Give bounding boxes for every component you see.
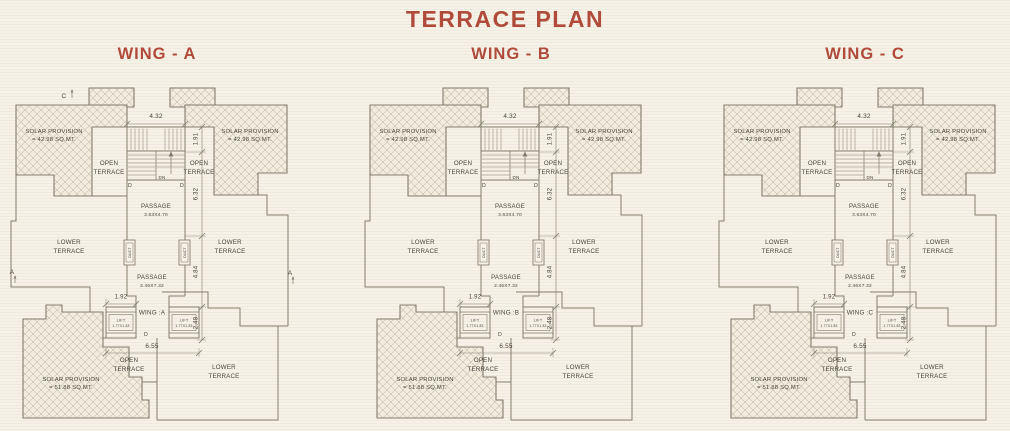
label-solar-provision-left: SOLAR PROVISION: [25, 129, 82, 135]
lift-label: LIFT: [117, 318, 126, 323]
wing-b-plan-svg: DNLIFT1.77X1.83LIFT1.77X1.83DUCTDUCT4.32…: [363, 86, 659, 431]
stair-dn-label: DN: [158, 175, 165, 180]
label-passage-lower-size: 2.46X7.32: [140, 283, 164, 289]
label-passage-lower-size: 2.46X7.32: [848, 283, 872, 289]
label-open-terrace-bottom: TERRACE: [114, 366, 145, 373]
label-lower-terrace-bottom-right: TERRACE: [563, 373, 594, 380]
dim-4-32: 4.32: [857, 113, 870, 120]
wall-line: [258, 195, 288, 326]
label-lower-terrace-bottom-right: TERRACE: [209, 373, 240, 380]
duct-label: DUCT: [128, 247, 132, 258]
label-lower-terrace-right: LOWER: [218, 239, 242, 246]
section-marker-a-right: A: [288, 270, 293, 277]
label-solar-provision-right: = 42.98 SQ.MT.: [582, 137, 626, 143]
section-marker-a-left: A: [10, 269, 15, 276]
door-label: D: [852, 332, 856, 338]
door-label: D: [128, 183, 132, 189]
stair-direction-arrow: [523, 151, 528, 156]
dim-6-55: 6.55: [499, 343, 512, 350]
lift-label: LIFT: [825, 318, 834, 323]
label-solar-provision-right: = 42.98 SQ.MT.: [228, 137, 272, 143]
label-solar-provision-right: = 42.98 SQ.MT.: [936, 137, 980, 143]
label-lower-terrace-bottom-right: TERRACE: [917, 373, 948, 380]
terrace-plan-sheet: TERRACE PLAN WING - A WING - B WING - C …: [0, 0, 1010, 431]
wing-a-drawing: DNLIFT1.77X1.83LIFT1.77X1.83DUCTDUCT4.32…: [9, 86, 305, 431]
dim-4-32: 4.32: [149, 113, 162, 120]
label-lower-terrace-right: LOWER: [572, 239, 596, 246]
lift-size-label: 1.77X1.83: [529, 324, 546, 328]
label-open-terrace-left: TERRACE: [94, 169, 125, 176]
label-passage-upper-size: 3.63X4.70: [498, 212, 522, 218]
dim-6-32: 6.32: [194, 187, 200, 200]
hatched-solar-area: [89, 88, 134, 107]
label-open-terrace-right: TERRACE: [892, 169, 923, 176]
lift-size-label: 1.77X1.83: [820, 324, 837, 328]
wing-a-plan-svg: DNLIFT1.77X1.83LIFT1.77X1.83DUCTDUCT4.32…: [9, 86, 305, 431]
hatched-solar-area: [878, 88, 923, 107]
label-passage-upper: PASSAGE: [141, 203, 171, 210]
label-open-terrace-right: TERRACE: [184, 169, 215, 176]
duct-label: DUCT: [891, 247, 895, 258]
dim-1-91: 1.91: [194, 132, 200, 145]
label-lower-terrace-left: LOWER: [765, 239, 789, 246]
dim-2-48: 2.48: [902, 316, 908, 329]
dim-4-32: 4.32: [503, 113, 516, 120]
label-lower-terrace-bottom-right: LOWER: [566, 364, 590, 371]
lift-size-label: 1.77X1.83: [175, 324, 192, 328]
duct-label: DUCT: [537, 247, 541, 258]
label-wing-name: WING :B: [493, 310, 519, 317]
label-open-terrace-left: OPEN: [100, 160, 118, 167]
label-solar-provision-bottom: SOLAR PROVISION: [42, 377, 99, 383]
wall-line: [612, 195, 642, 326]
dim-6-55: 6.55: [145, 343, 158, 350]
label-lower-terrace-left: LOWER: [57, 239, 81, 246]
duct-label: DUCT: [482, 247, 486, 258]
label-passage-upper-size: 3.63X4.70: [144, 212, 168, 218]
label-solar-provision-left: SOLAR PROVISION: [379, 129, 436, 135]
label-lower-terrace-left: TERRACE: [54, 248, 85, 255]
wall-line: [966, 195, 996, 326]
hatched-solar-area: [524, 88, 569, 107]
label-solar-provision-left: = 42.98 SQ.MT.: [386, 137, 430, 143]
stair-dn-label: DN: [866, 175, 873, 180]
label-lower-terrace-right: TERRACE: [569, 248, 600, 255]
section-marker-c-arrow: [71, 89, 74, 93]
wing-c-plan-svg: DNLIFT1.77X1.83LIFT1.77X1.83DUCTDUCT4.32…: [717, 86, 1010, 431]
label-lower-terrace-bottom-right: LOWER: [920, 364, 944, 371]
duct-label: DUCT: [836, 247, 840, 258]
wing-a-heading: WING - A: [77, 45, 237, 64]
hatched-solar-area: [797, 88, 842, 107]
label-lower-terrace-left: TERRACE: [408, 248, 439, 255]
wing-b-heading: WING - B: [431, 45, 591, 64]
label-open-terrace-left: TERRACE: [802, 169, 833, 176]
label-lower-terrace-right: TERRACE: [923, 248, 954, 255]
label-open-terrace-right: OPEN: [898, 160, 916, 167]
door-label: D: [180, 183, 184, 189]
label-lower-terrace-left: LOWER: [411, 239, 435, 246]
hatched-solar-area: [443, 88, 488, 107]
hatched-solar-area: [724, 105, 835, 196]
hatched-solar-area: [539, 105, 641, 195]
stair-direction-arrow: [877, 151, 882, 156]
hatched-solar-area: [16, 105, 127, 196]
lift-size-label: 1.77X1.83: [466, 324, 483, 328]
section-marker-c: C: [62, 93, 67, 100]
wall-line: [169, 296, 185, 307]
hatched-solar-area: [185, 105, 287, 195]
dim-1-92: 1.92: [469, 295, 482, 301]
dim-2-48: 2.48: [548, 316, 554, 329]
label-open-terrace-right: TERRACE: [538, 169, 569, 176]
wing-b-drawing: DNLIFT1.77X1.83LIFT1.77X1.83DUCTDUCT4.32…: [363, 86, 659, 431]
hatched-solar-area: [893, 105, 995, 195]
wing-c-drawing: DNLIFT1.77X1.83LIFT1.77X1.83DUCTDUCT4.32…: [717, 86, 1010, 431]
door-label: D: [498, 332, 502, 338]
dim-1-91: 1.91: [902, 132, 908, 145]
label-solar-provision-right: SOLAR PROVISION: [575, 129, 632, 135]
dim-1-92: 1.92: [115, 295, 128, 301]
lift-size-label: 1.77X1.83: [883, 324, 900, 328]
stair-dn-label: DN: [512, 175, 519, 180]
label-open-terrace-left: OPEN: [454, 160, 472, 167]
label-passage-lower-size: 2.46X7.32: [494, 283, 518, 289]
label-passage-lower: PASSAGE: [491, 275, 521, 281]
duct-label: DUCT: [183, 247, 187, 258]
lift-label: LIFT: [888, 318, 897, 323]
label-lower-terrace-right: TERRACE: [215, 248, 246, 255]
wing-c-heading: WING - C: [785, 45, 945, 64]
hatched-solar-area: [170, 88, 215, 107]
label-passage-lower: PASSAGE: [137, 275, 167, 281]
wall-line: [877, 296, 893, 307]
dim-1-92: 1.92: [823, 295, 836, 301]
label-open-terrace-bottom: OPEN: [120, 357, 138, 364]
lift-label: LIFT: [534, 318, 543, 323]
hatched-solar-area: [370, 105, 481, 196]
door-label: D: [482, 183, 486, 189]
label-solar-provision-bottom: = 51.88 SQ.MT.: [403, 385, 447, 391]
label-open-terrace-right: OPEN: [544, 160, 562, 167]
label-passage-upper-size: 3.63X4.70: [852, 212, 876, 218]
label-solar-provision-right: SOLAR PROVISION: [929, 129, 986, 135]
label-lower-terrace-right: LOWER: [926, 239, 950, 246]
lift-label: LIFT: [180, 318, 189, 323]
dim-4-84: 4.84: [902, 265, 908, 278]
dim-6-55: 6.55: [853, 343, 866, 350]
label-solar-provision-bottom: = 51.88 SQ.MT.: [49, 385, 93, 391]
label-solar-provision-bottom: SOLAR PROVISION: [750, 377, 807, 383]
label-solar-provision-bottom: = 51.88 SQ.MT.: [757, 385, 801, 391]
door-label: D: [888, 183, 892, 189]
dim-4-84: 4.84: [548, 265, 554, 278]
label-open-terrace-left: OPEN: [808, 160, 826, 167]
label-solar-provision-left: SOLAR PROVISION: [733, 129, 790, 135]
label-wing-name: WING :A: [139, 310, 166, 317]
lift-size-label: 1.77X1.83: [112, 324, 129, 328]
label-wing-name: WING :C: [847, 310, 874, 317]
label-solar-provision-left: = 42.98 SQ.MT.: [32, 137, 76, 143]
label-open-terrace-left: TERRACE: [448, 169, 479, 176]
wall-line: [523, 296, 539, 307]
dim-2-48: 2.48: [194, 316, 200, 329]
label-open-terrace-bottom: OPEN: [828, 357, 846, 364]
label-open-terrace-bottom: OPEN: [474, 357, 492, 364]
label-open-terrace-bottom: TERRACE: [822, 366, 853, 373]
label-lower-terrace-bottom-right: LOWER: [212, 364, 236, 371]
dim-4-84: 4.84: [194, 265, 200, 278]
label-passage-upper: PASSAGE: [849, 203, 879, 210]
dim-6-32: 6.32: [902, 187, 908, 200]
dim-6-32: 6.32: [548, 187, 554, 200]
label-solar-provision-right: SOLAR PROVISION: [221, 129, 278, 135]
page-title: TERRACE PLAN: [0, 6, 1010, 33]
label-open-terrace-bottom: TERRACE: [468, 366, 499, 373]
door-label: D: [144, 332, 148, 338]
door-label: D: [836, 183, 840, 189]
label-passage-lower: PASSAGE: [845, 275, 875, 281]
label-open-terrace-right: OPEN: [190, 160, 208, 167]
lift-label: LIFT: [471, 318, 480, 323]
door-label: D: [534, 183, 538, 189]
label-solar-provision-bottom: SOLAR PROVISION: [396, 377, 453, 383]
label-solar-provision-left: = 42.98 SQ.MT.: [740, 137, 784, 143]
dim-1-91: 1.91: [548, 132, 554, 145]
stair-direction-arrow: [169, 151, 174, 156]
label-lower-terrace-left: TERRACE: [762, 248, 793, 255]
label-passage-upper: PASSAGE: [495, 203, 525, 210]
